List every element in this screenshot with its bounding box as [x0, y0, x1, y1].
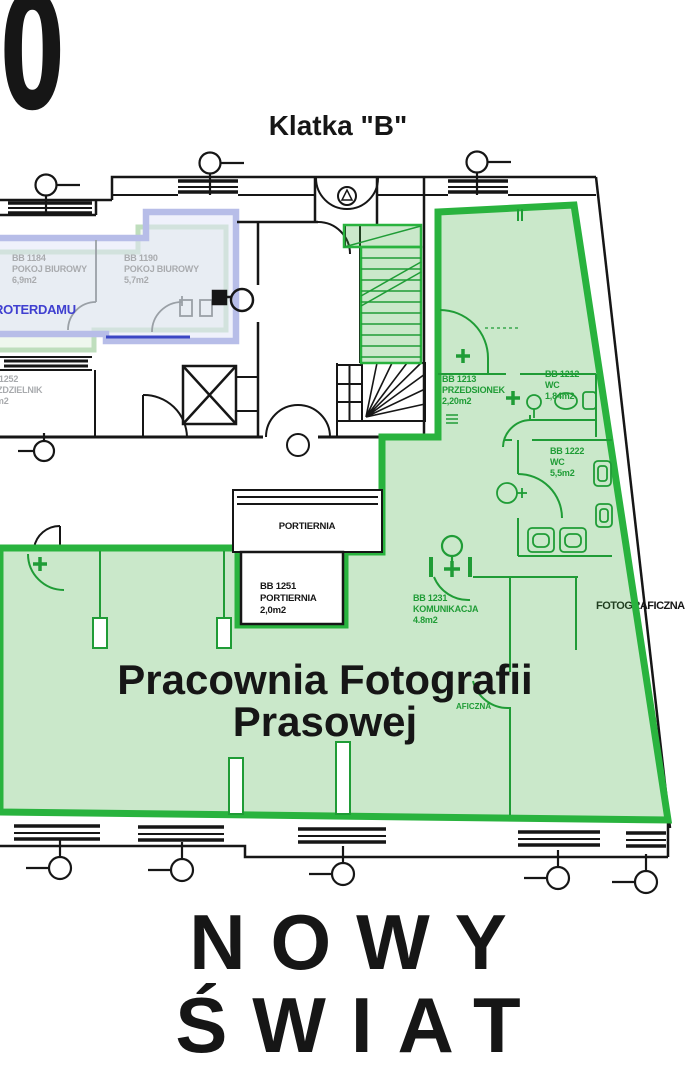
x-shaft — [183, 366, 258, 424]
street-line1: NOWY — [0, 901, 696, 984]
top-double-door — [316, 178, 378, 209]
room-name: WC — [550, 457, 584, 468]
street-name: NOWY ŚWIAT — [0, 901, 696, 1066]
bottom-windows — [14, 826, 666, 846]
roterdamu-label: ROTERDAMU — [0, 302, 76, 317]
room-name: ROZDZIELNIK — [0, 385, 42, 396]
room-id: BB 1184 — [12, 253, 87, 264]
room-area: 4.8m2 — [413, 615, 478, 626]
room-id: BB 1251 — [260, 581, 317, 593]
room-id: BB 1213 — [442, 374, 505, 385]
room-label-bb1252: BB 1252 ROZDZIELNIK 1,5m2 — [0, 374, 42, 407]
room-name: PORTIERNIA — [260, 593, 317, 605]
room-label-bb1251: BB 1251 PORTIERNIA 2,0m2 — [260, 581, 317, 616]
staircase-b-label: Klatka "B" — [238, 110, 438, 142]
window-top-left — [8, 203, 92, 213]
room-area: 5,5m2 — [550, 468, 584, 479]
room-label-bb1212: BB 1212 WC 1,84m2 — [545, 369, 579, 402]
room-label-bb1231: BB 1231 KOMUNIKACJA 4.8m2 — [413, 593, 478, 626]
room-name: KOMUNIKACJA — [413, 604, 478, 615]
room-area: 6,9m2 — [12, 275, 87, 286]
highlight-area-title: Pracownia Fotografii Prasowej — [55, 659, 595, 743]
room-label-bb1190: BB 1190 POKOJ BIUROWY 5,7m2 — [124, 253, 199, 286]
room-area: 2,20m2 — [442, 396, 505, 407]
room-label-bb1184: BB 1184 POKOJ BIUROWY 6,9m2 — [12, 253, 87, 286]
room-area: 1,5m2 — [0, 396, 42, 407]
room-name: POKOJ BIUROWY — [12, 264, 87, 275]
street-line2: ŚWIAT — [0, 984, 696, 1067]
room-area: 5,7m2 — [124, 275, 199, 286]
room-id: BB 1222 — [550, 446, 584, 457]
floor-plan-page: FOTOGRAFICZNA — [0, 0, 696, 1080]
title-line2: Prasowej — [55, 701, 595, 743]
room-name: PRZEDSIONEK — [442, 385, 505, 396]
room-area: 1,84m2 — [545, 391, 579, 402]
room-label-bb1222: BB 1222 WC 5,5m2 — [550, 446, 584, 479]
window-top-a — [178, 181, 238, 192]
room-name: POKOJ BIUROWY — [124, 264, 199, 275]
room-name: WC — [545, 380, 579, 391]
portiernia-desk-label: PORTIERNIA — [252, 521, 362, 532]
entrance-double-door — [266, 405, 330, 456]
figure-number: 0 — [0, 0, 65, 133]
room-id: BB 1252 — [0, 374, 42, 385]
room-id: BB 1190 — [124, 253, 199, 264]
title-line1: Pracownia Fotografii — [55, 659, 595, 701]
staircase — [344, 225, 421, 363]
room-area: 2,0m2 — [260, 605, 317, 617]
room-label-bb1213: BB 1213 PRZEDSIONEK 2,20m2 — [442, 374, 505, 407]
room-id: BB 1231 — [413, 593, 478, 604]
room-id: BB 1212 — [545, 369, 579, 380]
